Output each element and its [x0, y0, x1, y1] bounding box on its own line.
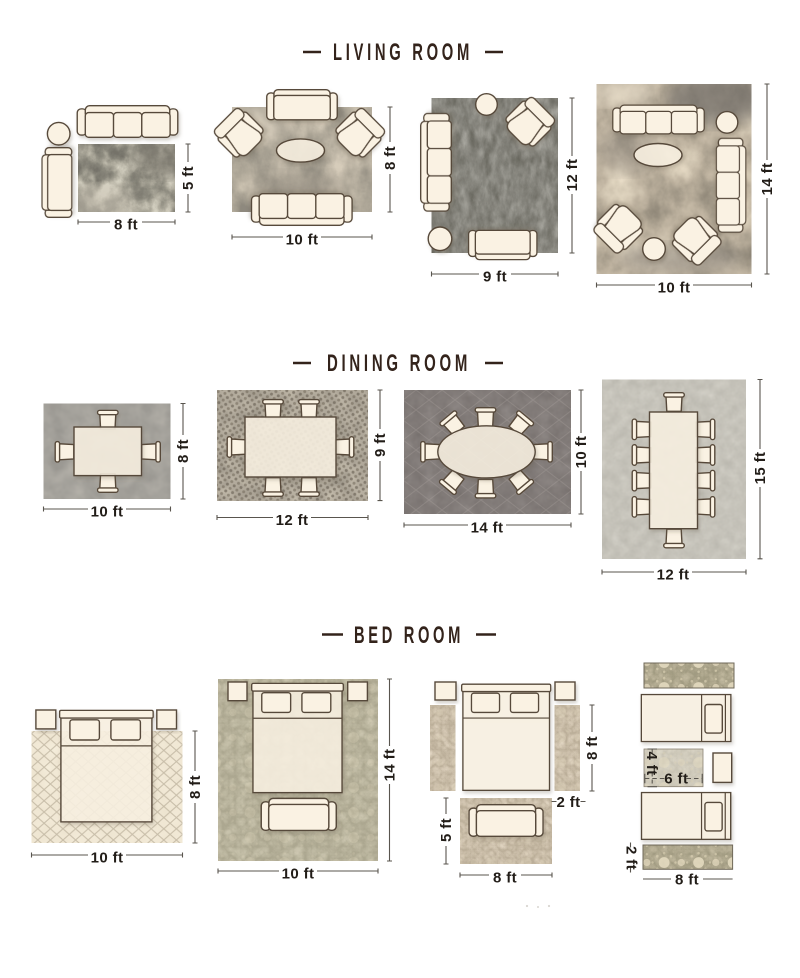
svg-text:14 ft: 14 ft [759, 163, 776, 196]
svg-text:10 ft: 10 ft [658, 280, 691, 297]
svg-text:10 ft: 10 ft [91, 504, 124, 521]
svg-text:10 ft: 10 ft [286, 232, 319, 249]
svg-text:10 ft: 10 ft [573, 436, 590, 469]
svg-text:8 ft: 8 ft [114, 217, 138, 234]
svg-text:12 ft: 12 ft [276, 512, 309, 529]
svg-text:BED ROOM: BED ROOM [354, 622, 464, 649]
svg-text:8 ft: 8 ft [675, 872, 699, 889]
svg-text:2 ft: 2 ft [556, 794, 580, 811]
svg-text:5 ft: 5 ft [438, 818, 455, 842]
svg-text:9 ft: 9 ft [372, 433, 389, 457]
svg-text:LIVING ROOM: LIVING ROOM [333, 39, 473, 66]
svg-text:9 ft: 9 ft [483, 269, 507, 286]
svg-text:14 ft: 14 ft [382, 749, 399, 782]
svg-text:5 ft: 5 ft [180, 166, 197, 190]
svg-text:DINING ROOM: DINING ROOM [327, 350, 471, 377]
svg-text:8 ft: 8 ft [187, 775, 204, 799]
svg-text:8 ft: 8 ft [175, 439, 192, 463]
svg-text:6 ft: 6 ft [664, 771, 688, 788]
svg-text:10 ft: 10 ft [282, 866, 315, 883]
svg-text:8 ft: 8 ft [584, 736, 601, 760]
svg-text:8 ft: 8 ft [493, 870, 517, 887]
svg-text:8 ft: 8 ft [382, 146, 399, 170]
svg-text:4 ft: 4 ft [643, 751, 660, 775]
svg-text:2 ft: 2 ft [623, 846, 640, 870]
svg-text:14 ft: 14 ft [471, 520, 504, 537]
svg-text:15 ft: 15 ft [752, 452, 769, 485]
svg-text:12 ft: 12 ft [657, 567, 690, 584]
svg-text:12 ft: 12 ft [564, 159, 581, 192]
svg-text:10 ft: 10 ft [91, 850, 124, 867]
